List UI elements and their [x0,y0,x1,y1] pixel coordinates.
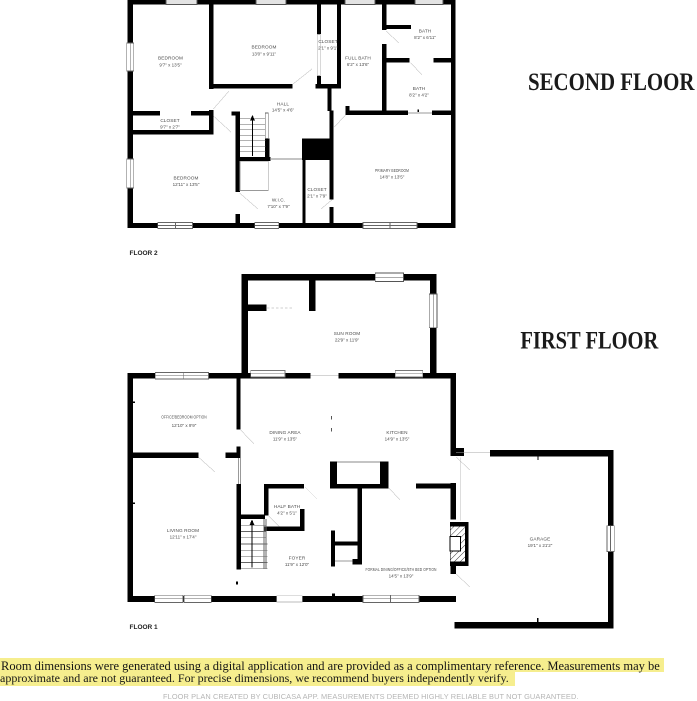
svg-text:OFFICE/BEDROOM OPTION: OFFICE/BEDROOM OPTION [161,415,207,420]
svg-text:12'11" x 17'4": 12'11" x 17'4" [170,535,197,540]
svg-text:FIRST FLOOR: FIRST FLOOR [520,326,658,355]
svg-text:SUN ROOM: SUN ROOM [334,331,361,336]
svg-text:FOYER: FOYER [289,556,306,561]
svg-text:KITCHEN: KITCHEN [386,430,407,435]
svg-text:HALL: HALL [277,102,289,107]
svg-text:BEDROOM: BEDROOM [252,45,277,50]
svg-text:14'8" x 13'5": 14'8" x 13'5" [380,175,405,180]
svg-text:14'9" x 13'5": 14'9" x 13'5" [385,437,410,442]
svg-text:W.I.C.: W.I.C. [272,198,285,203]
svg-text:11'9" x 13'5": 11'9" x 13'5" [273,437,298,442]
svg-text:12'11" x 13'5": 12'11" x 13'5" [173,182,200,187]
svg-text:13'0" x 9'11": 13'0" x 9'11" [252,52,277,57]
svg-text:FORMAL DINING/OFFICE/5TH BED O: FORMAL DINING/OFFICE/5TH BED OPTION [366,567,437,572]
svg-text:PRIMARY BEDROOM: PRIMARY BEDROOM [375,168,409,173]
svg-text:FLOOR 2: FLOOR 2 [130,250,159,257]
svg-text:HALF BATH: HALF BATH [274,504,300,509]
svg-text:11'9" x 12'0": 11'9" x 12'0" [285,562,310,567]
svg-text:8'2" x 6'11": 8'2" x 6'11" [414,35,436,40]
svg-text:2'1" x 9'1": 2'1" x 9'1" [318,46,338,51]
svg-text:SECOND FLOOR: SECOND FLOOR [528,67,695,96]
svg-text:14'5" x 4'6": 14'5" x 4'6" [272,108,295,113]
svg-text:22'9" x 11'9": 22'9" x 11'9" [335,338,360,343]
svg-text:19'1" x 21'2": 19'1" x 21'2" [528,543,553,548]
svg-text:GARAGE: GARAGE [530,537,551,542]
svg-text:BEDROOM: BEDROOM [158,56,183,61]
svg-text:4'2" x 5'1": 4'2" x 5'1" [277,511,297,516]
svg-text:12'10" x 9'9": 12'10" x 9'9" [172,423,197,428]
svg-text:BATH: BATH [419,29,432,34]
svg-text:BEDROOM: BEDROOM [174,176,199,181]
svg-text:14'5" x 13'9": 14'5" x 13'9" [389,574,414,579]
svg-text:CLOSET: CLOSET [160,118,179,123]
svg-text:CLOSET: CLOSET [318,39,337,44]
svg-text:DINING AREA: DINING AREA [269,430,301,435]
svg-text:7'10" x 7'9": 7'10" x 7'9" [267,204,290,209]
svg-text:9'7" x 2'7": 9'7" x 2'7" [160,125,180,130]
svg-text:CLOSET: CLOSET [307,187,326,192]
svg-text:FULL BATH: FULL BATH [345,56,371,61]
svg-text:8'2" x 4'2": 8'2" x 4'2" [409,93,429,98]
svg-text:6'2" x 13'6": 6'2" x 13'6" [347,62,370,67]
svg-text:2'1" x 7'9": 2'1" x 7'9" [307,194,327,199]
svg-text:9'7" x 13'5": 9'7" x 13'5" [159,63,182,68]
svg-text:BATH: BATH [413,86,426,91]
svg-text:LIVING ROOM: LIVING ROOM [167,528,199,533]
svg-text:FLOOR 1: FLOOR 1 [130,624,159,631]
